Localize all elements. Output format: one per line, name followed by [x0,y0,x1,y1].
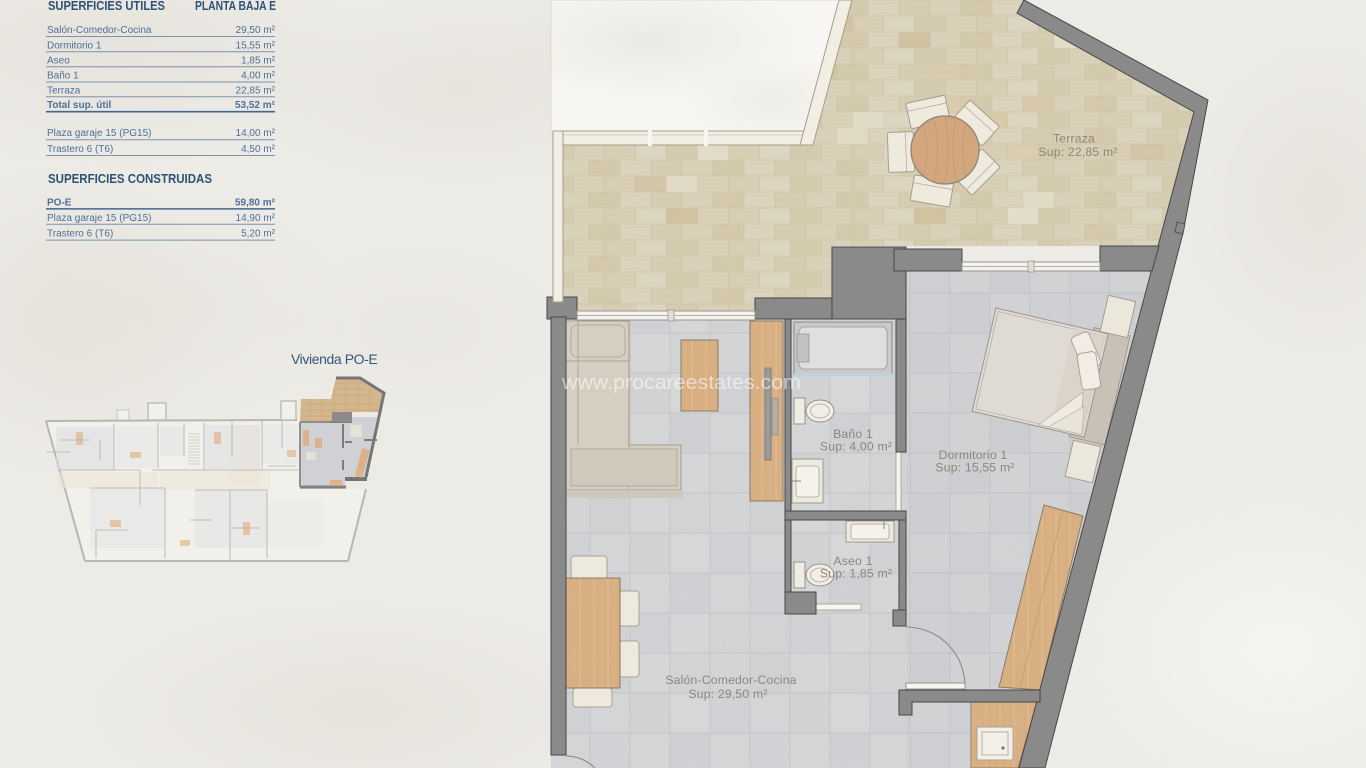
svg-text:4,50 m²: 4,50 m² [241,144,276,155]
svg-text:Total sup. útil: Total sup. útil [47,100,111,111]
svg-text:Plaza garaje 15 (PG15): Plaza garaje 15 (PG15) [47,128,152,139]
svg-text:www.procareestates.com: www.procareestates.com [561,372,801,394]
svg-text:4,00 m²: 4,00 m² [241,71,276,82]
svg-text:14,00 m²: 14,00 m² [236,128,276,139]
svg-text:Terraza: Terraza [1053,132,1095,146]
svg-text:29,50 m²: 29,50 m² [236,25,276,36]
svg-text:Vivienda PO-E: Vivienda PO-E [291,351,378,367]
svg-text:Trastero 6 (T6): Trastero 6 (T6) [47,229,113,240]
svg-text:SUPERFICIES CONSTRUIDAS: SUPERFICIES CONSTRUIDAS [48,172,212,186]
svg-text:Sup: 15,55 m²: Sup: 15,55 m² [935,461,1014,475]
svg-text:PO-E: PO-E [47,197,72,208]
svg-text:5,20 m²: 5,20 m² [241,229,276,240]
svg-text:Trastero 6 (T6): Trastero 6 (T6) [47,144,113,155]
svg-text:14,90 m²: 14,90 m² [236,213,276,224]
svg-text:Sup: 1,85 m²: Sup: 1,85 m² [820,567,892,581]
svg-text:1,85 m²: 1,85 m² [241,55,276,66]
svg-text:Terraza: Terraza [47,85,81,96]
svg-text:15,55 m²: 15,55 m² [236,40,276,51]
svg-text:Dormitorio 1: Dormitorio 1 [47,40,102,51]
svg-text:Sup: 4,00 m²: Sup: 4,00 m² [820,440,892,454]
svg-text:Plaza garaje 15 (PG15): Plaza garaje 15 (PG15) [47,213,152,224]
svg-text:Salón-Comedor-Cocina: Salón-Comedor-Cocina [47,25,152,36]
svg-text:22,85 m²: 22,85 m² [236,85,276,96]
svg-text:Salón-Comedor-Cocina: Salón-Comedor-Cocina [665,673,796,687]
svg-text:Aseo: Aseo [47,55,70,66]
svg-text:PLANTA BAJA E: PLANTA BAJA E [195,0,276,13]
svg-text:53,52 m²: 53,52 m² [235,100,276,111]
svg-text:Sup: 29,50 m²: Sup: 29,50 m² [688,687,767,701]
svg-text:Sup: 22,85 m²: Sup: 22,85 m² [1038,145,1117,159]
svg-text:SUPERFICIES UTILES: SUPERFICIES UTILES [48,0,165,13]
svg-text:Baño 1: Baño 1 [47,71,79,82]
svg-text:59,80 m²: 59,80 m² [235,197,276,208]
